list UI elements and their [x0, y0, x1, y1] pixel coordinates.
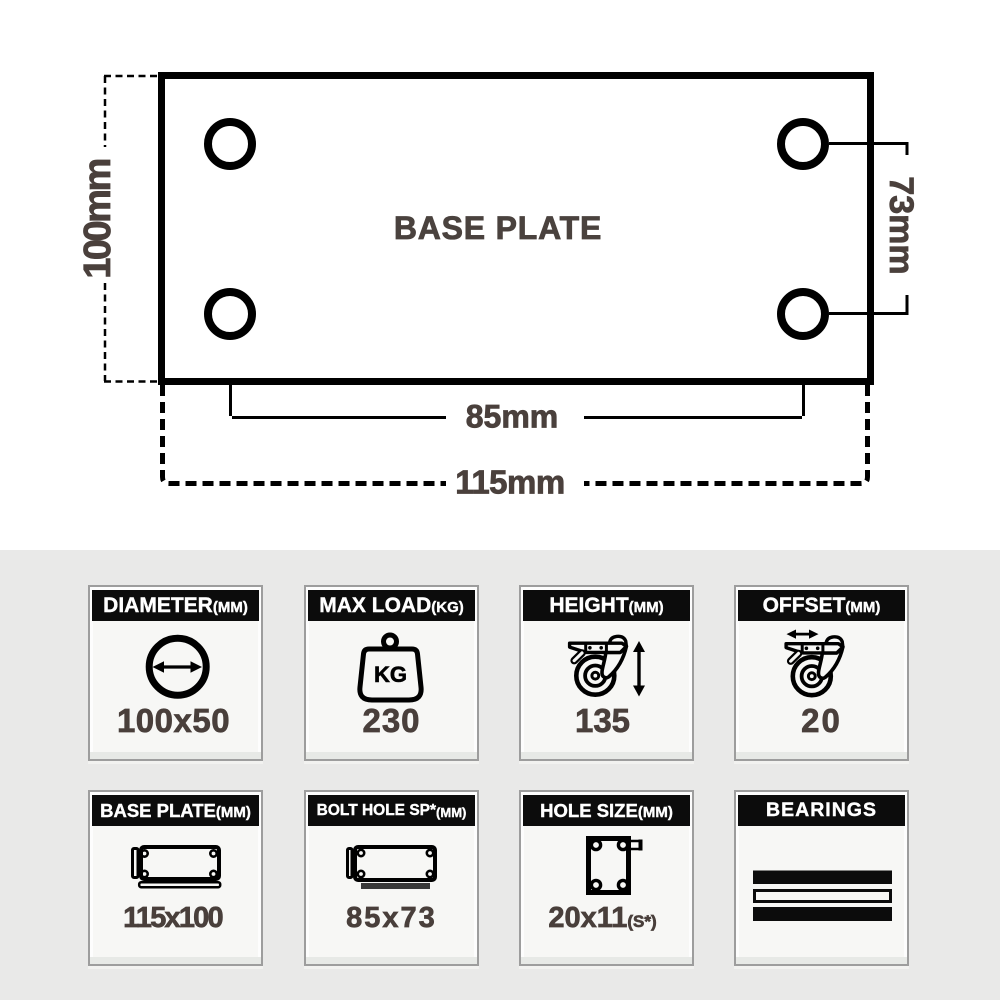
svg-text:85mm: 85mm — [466, 399, 559, 435]
svg-text:KG: KG — [374, 662, 407, 687]
svg-text:BASE PLATE: BASE PLATE — [394, 210, 602, 246]
svg-text:100mm: 100mm — [77, 160, 119, 279]
svg-text:73mm: 73mm — [882, 176, 920, 274]
svg-text:115mm: 115mm — [455, 464, 564, 501]
